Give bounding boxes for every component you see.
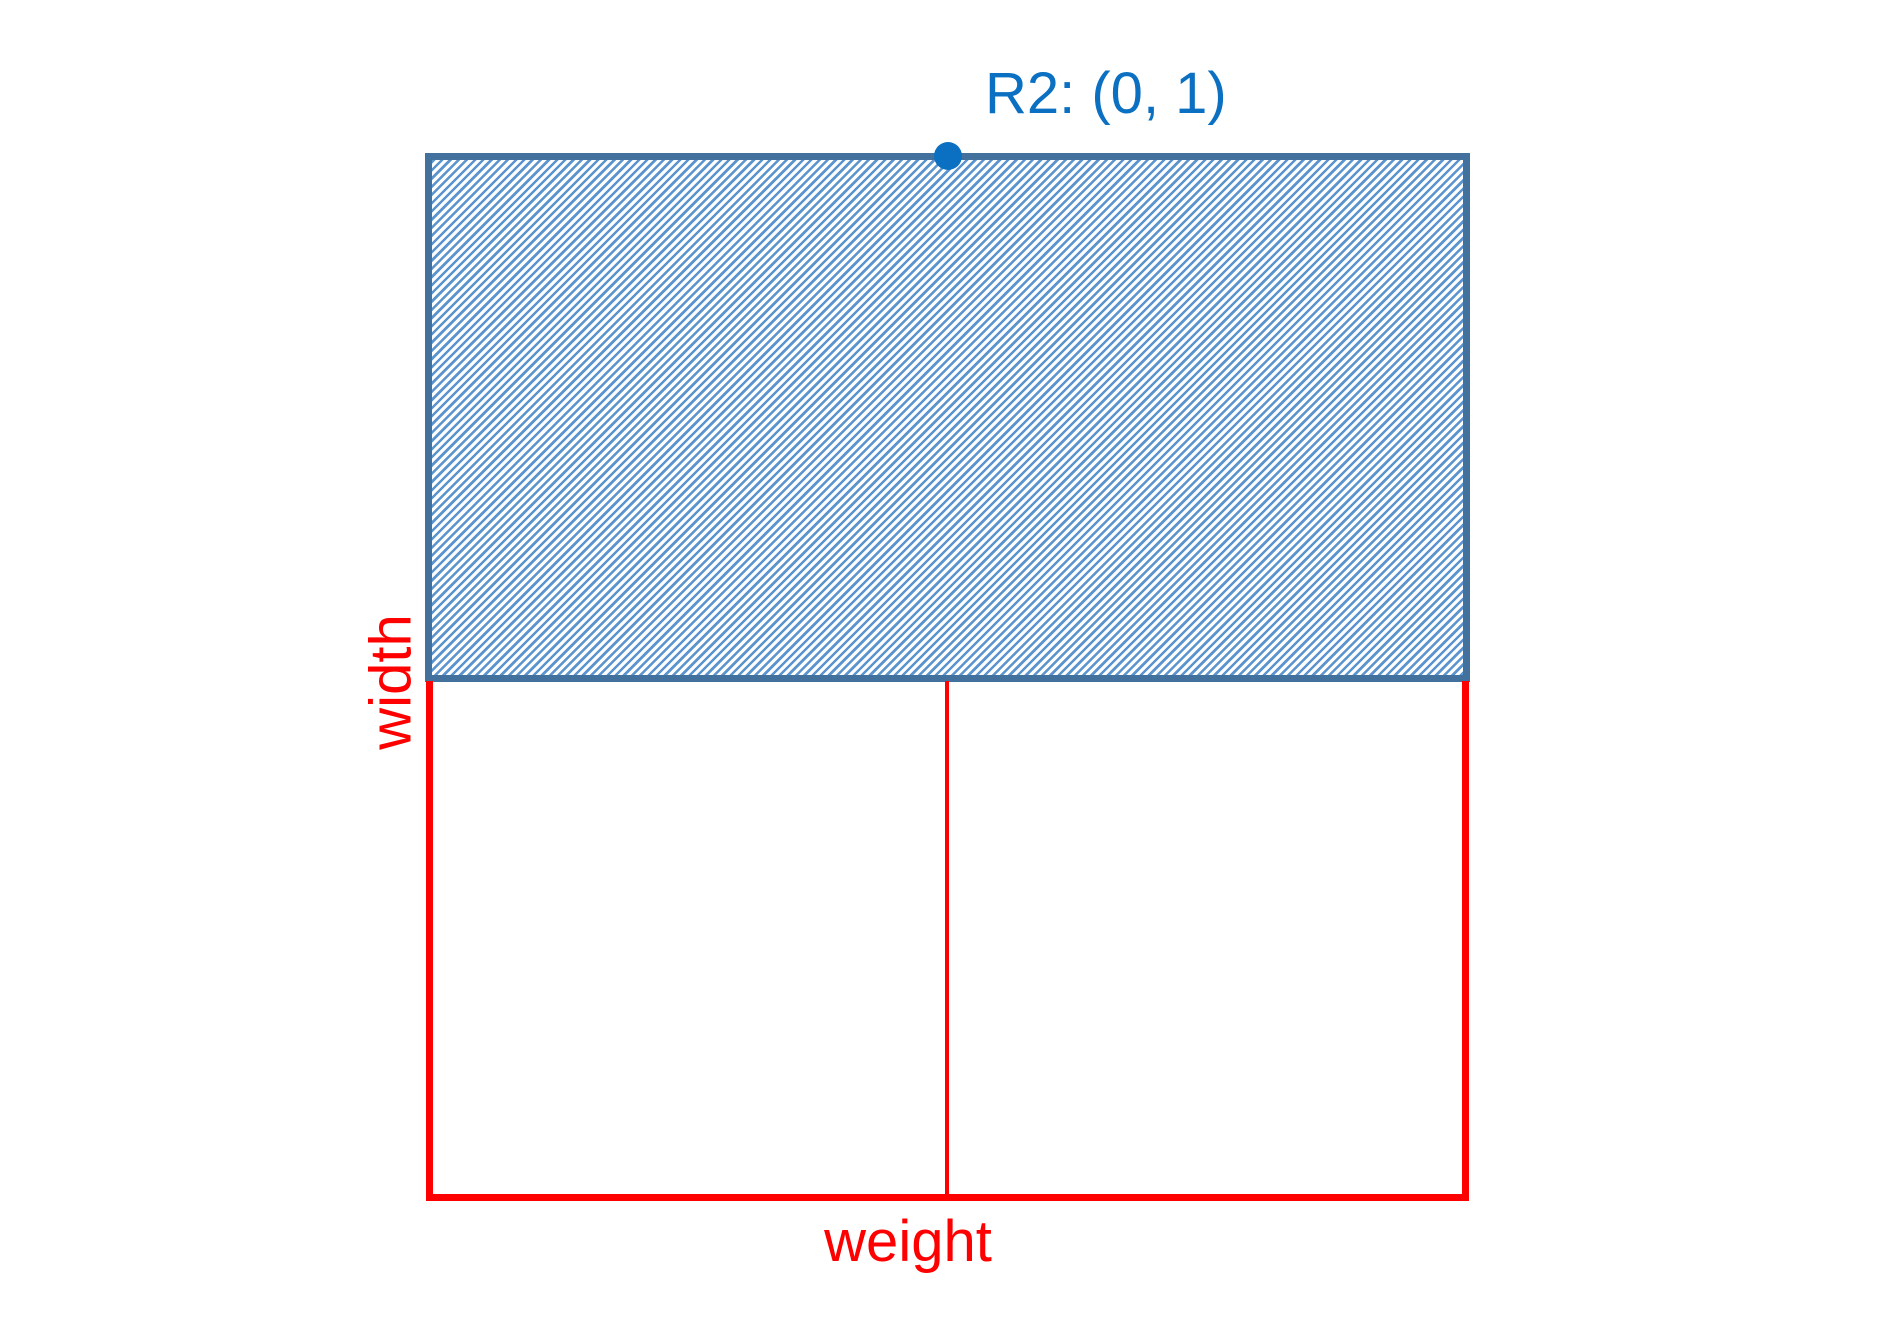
region-r2-hatched-rectangle [425,153,1470,682]
vertical-divider-line [945,681,949,1194]
diagram-canvas: R2: (0, 1) width weight [0,0,1900,1335]
point-r2-label: R2: (0, 1) [985,62,1227,126]
y-axis-label-width: width [358,614,425,749]
point-r2-dot-icon [934,142,962,170]
x-axis-label-weight: weight [824,1208,992,1275]
